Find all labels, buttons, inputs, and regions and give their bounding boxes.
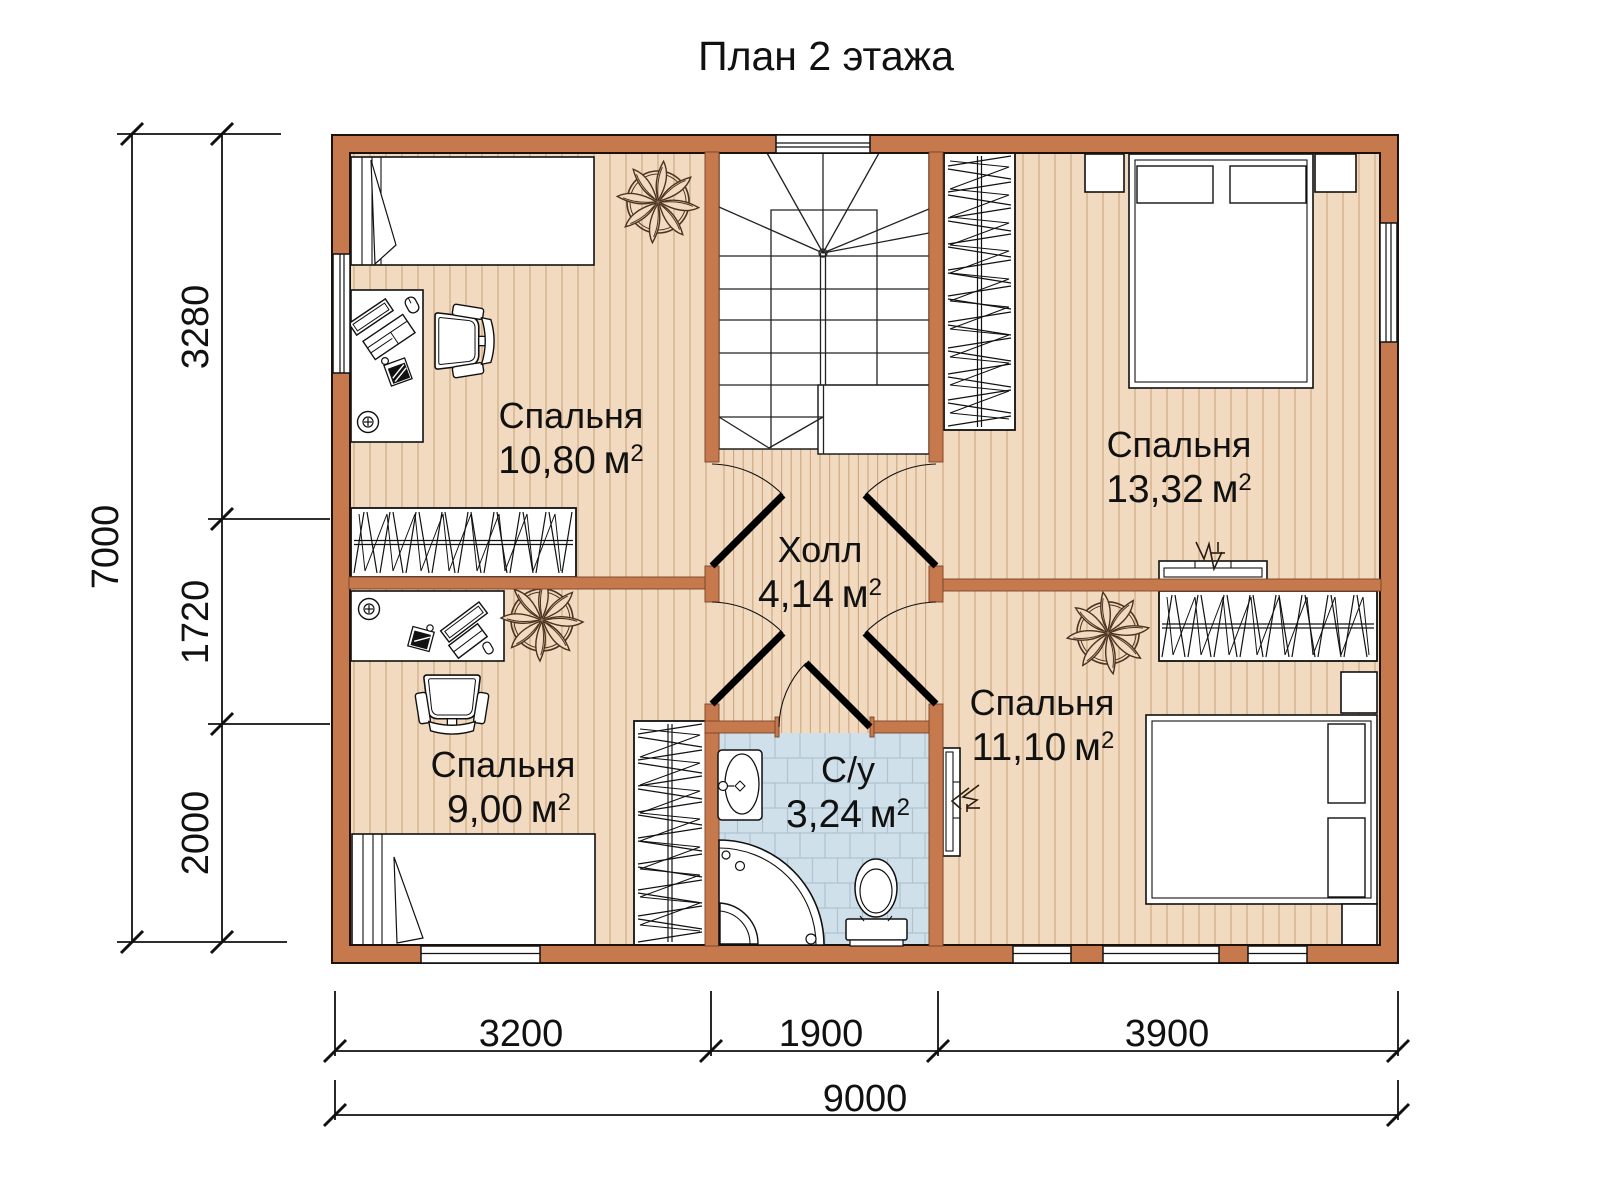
svg-text:С/у: С/у [821,749,875,790]
svg-text:Холл: Холл [778,529,863,570]
svg-text:Спальня: Спальня [431,744,576,785]
svg-text:3,24 м2: 3,24 м2 [786,793,910,836]
svg-text:13,32 м2: 13,32 м2 [1106,468,1252,511]
svg-text:10,80 м2: 10,80 м2 [498,439,644,482]
svg-text:3200: 3200 [479,1013,564,1055]
svg-text:Спальня: Спальня [1107,424,1252,465]
svg-text:4,14 м2: 4,14 м2 [758,573,882,616]
svg-text:9000: 9000 [823,1078,908,1120]
svg-text:Спальня: Спальня [970,682,1115,723]
svg-text:3280: 3280 [175,285,217,370]
svg-text:1900: 1900 [779,1013,864,1055]
svg-text:2000: 2000 [175,791,217,876]
svg-text:11,10 м2: 11,10 м2 [972,726,1115,769]
svg-text:1720: 1720 [175,580,217,665]
svg-text:Спальня: Спальня [499,395,644,436]
svg-text:План 2 этажа: План 2 этажа [698,33,954,79]
svg-text:9,00 м2: 9,00 м2 [447,788,571,831]
svg-text:7000: 7000 [85,505,127,590]
svg-text:3900: 3900 [1125,1013,1210,1055]
